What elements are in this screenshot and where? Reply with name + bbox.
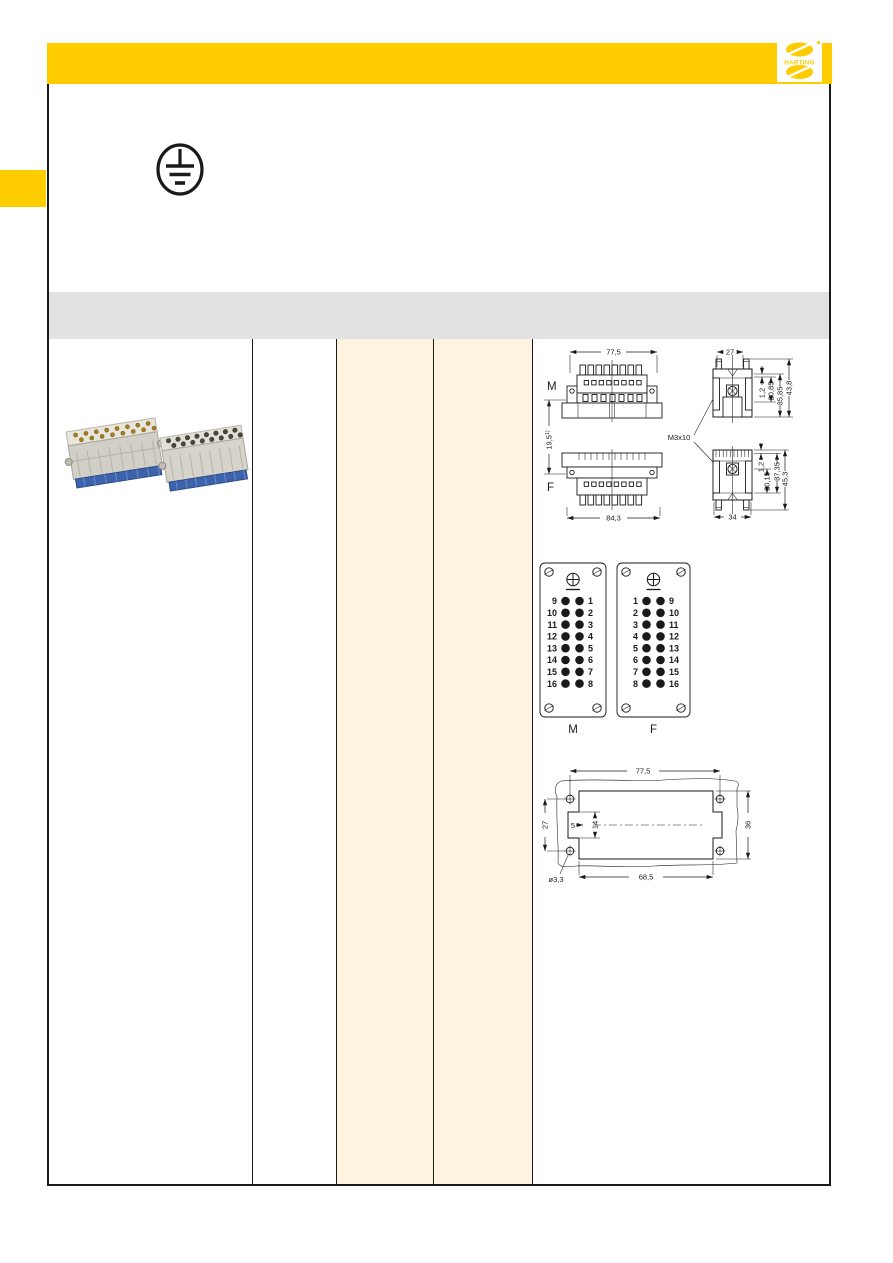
svg-text:77,5: 77,5 <box>636 767 651 776</box>
contact-dot <box>656 632 665 641</box>
svg-text:77,5: 77,5 <box>606 348 621 357</box>
contact-number: 3 <box>588 620 593 630</box>
dim-female-width: 84,3 <box>567 507 660 523</box>
catalog-page: HARTING <box>0 0 893 1263</box>
contact-dot <box>575 632 584 641</box>
svg-text:36: 36 <box>744 821 753 829</box>
table-column-divider <box>433 339 434 1184</box>
contact-number: 12 <box>669 632 679 642</box>
dim-hole-diameter: ø3,3 <box>548 854 568 884</box>
svg-text:45,3: 45,3 <box>781 472 790 487</box>
contact-dot <box>642 597 651 606</box>
contact-dot <box>656 620 665 629</box>
svg-text:68,5: 68,5 <box>639 873 654 882</box>
contact-dot <box>642 632 651 641</box>
contact-number: 9 <box>669 596 674 606</box>
contact-dot <box>642 679 651 688</box>
contact-number: 7 <box>633 667 638 677</box>
svg-text:1,2: 1,2 <box>758 388 767 398</box>
contact-number: 5 <box>633 643 638 653</box>
contact-dot <box>656 656 665 665</box>
male-view-label: M <box>547 381 557 393</box>
contact-number: 6 <box>588 655 593 665</box>
contact-dot <box>561 632 570 641</box>
contact-dot <box>656 597 665 606</box>
female-contact-face: 19210311412513614715816 <box>617 563 690 717</box>
contact-dot <box>656 679 665 688</box>
contact-dot <box>575 644 584 653</box>
contact-number: 4 <box>633 632 638 642</box>
header-bar <box>47 43 832 84</box>
contact-number: 5 <box>588 643 593 653</box>
contact-dot <box>642 609 651 618</box>
contact-dot <box>575 679 584 688</box>
contact-dot <box>561 597 570 606</box>
svg-text:ø3,3: ø3,3 <box>548 875 563 884</box>
contact-number: 11 <box>547 620 557 630</box>
contact-dot <box>642 644 651 653</box>
contact-number: 13 <box>547 643 557 653</box>
contact-dot <box>575 620 584 629</box>
contact-number: 3 <box>633 620 638 630</box>
screw-callout: M3x10 <box>668 399 713 462</box>
female-insert-side-view <box>713 446 752 514</box>
contact-dot <box>561 644 570 653</box>
dim-chain-side-bottom: 1,2 20,15 37,35 45,3 <box>750 443 790 510</box>
contact-number: 2 <box>588 608 593 618</box>
dim-notch-depth: 5 <box>571 821 583 830</box>
contact-number: 12 <box>547 632 557 642</box>
section-title-band <box>49 292 829 339</box>
contact-number: 14 <box>669 655 679 665</box>
svg-text:19,51): 19,51) <box>545 430 554 449</box>
contact-number: 8 <box>588 679 593 689</box>
contact-number: 8 <box>633 679 638 689</box>
contact-number: 1 <box>588 596 593 606</box>
svg-text:20,85: 20,85 <box>767 382 776 401</box>
female-face-label: F <box>650 724 657 736</box>
contact-dot <box>561 620 570 629</box>
contact-dot <box>575 656 584 665</box>
contact-number: 15 <box>669 667 679 677</box>
svg-text:84,3: 84,3 <box>606 514 621 523</box>
contact-number: 10 <box>669 608 679 618</box>
contact-dot <box>642 620 651 629</box>
svg-text:14: 14 <box>591 821 600 829</box>
contact-dot <box>642 656 651 665</box>
contact-dot <box>575 597 584 606</box>
contact-dot <box>656 668 665 677</box>
contact-dot <box>642 668 651 677</box>
female-insert-photo <box>155 425 250 492</box>
male-insert-front-view <box>562 360 662 422</box>
contact-dot <box>575 668 584 677</box>
contact-number: 15 <box>547 667 557 677</box>
contact-arrangement-drawing: 91102113124135146157168 M 19210311412513… <box>533 560 713 740</box>
contact-number: 4 <box>588 632 593 642</box>
contact-number: 1 <box>633 596 638 606</box>
dim-cutout-left: 27 <box>541 799 565 851</box>
contact-dot <box>656 609 665 618</box>
svg-text:M3x10: M3x10 <box>668 433 691 442</box>
svg-text:1,2: 1,2 <box>757 462 766 472</box>
svg-text:35,85: 35,85 <box>776 387 785 406</box>
highlight-columns <box>337 339 533 1184</box>
contact-dot <box>656 644 665 653</box>
contact-number: 9 <box>552 596 557 606</box>
insert-dimension-drawing: M 77,5 F 84,3 <box>533 343 833 538</box>
registered-mark-icon <box>817 41 820 44</box>
harting-logo: HARTING <box>777 39 822 82</box>
contact-dot <box>561 609 570 618</box>
dim-chain-side-top: 1,2 20,85 35,85 43,8 <box>750 359 794 417</box>
table-column-divider <box>336 339 337 1184</box>
contact-number: 14 <box>547 655 557 665</box>
male-insert-photo <box>61 417 170 489</box>
panel-cutout-drawing: 77,5 27 5 14 36 <box>533 753 768 895</box>
contact-number: 11 <box>669 620 679 630</box>
female-view-label: F <box>547 482 554 494</box>
contact-number: 10 <box>547 608 557 618</box>
harting-logo-mark: HARTING <box>777 39 822 82</box>
female-insert-front-view <box>562 449 662 510</box>
male-face-label: M <box>568 724 578 736</box>
male-insert-side-view <box>713 355 752 423</box>
contact-dot <box>561 679 570 688</box>
svg-text:34: 34 <box>728 513 736 522</box>
male-contact-face: 91102113124135146157168 <box>540 563 606 717</box>
contact-dot <box>561 668 570 677</box>
svg-text:20,15: 20,15 <box>763 472 772 491</box>
dim-cutout-bottom: 68,5 <box>579 861 713 882</box>
contact-number: 13 <box>669 643 679 653</box>
svg-text:27: 27 <box>541 821 550 829</box>
protective-earth-icon <box>154 140 206 198</box>
contact-dot <box>575 609 584 618</box>
contact-number: 16 <box>547 679 557 689</box>
svg-text:27: 27 <box>726 348 734 357</box>
svg-text:5: 5 <box>571 821 575 830</box>
contact-number: 16 <box>669 679 679 689</box>
contact-dot <box>561 656 570 665</box>
product-photo <box>58 412 253 507</box>
contact-number: 2 <box>633 608 638 618</box>
contact-number: 7 <box>588 667 593 677</box>
panel-sheet-outline <box>555 779 738 867</box>
svg-text:43,8: 43,8 <box>785 381 794 396</box>
contact-number: 6 <box>633 655 638 665</box>
section-tab <box>0 170 46 207</box>
